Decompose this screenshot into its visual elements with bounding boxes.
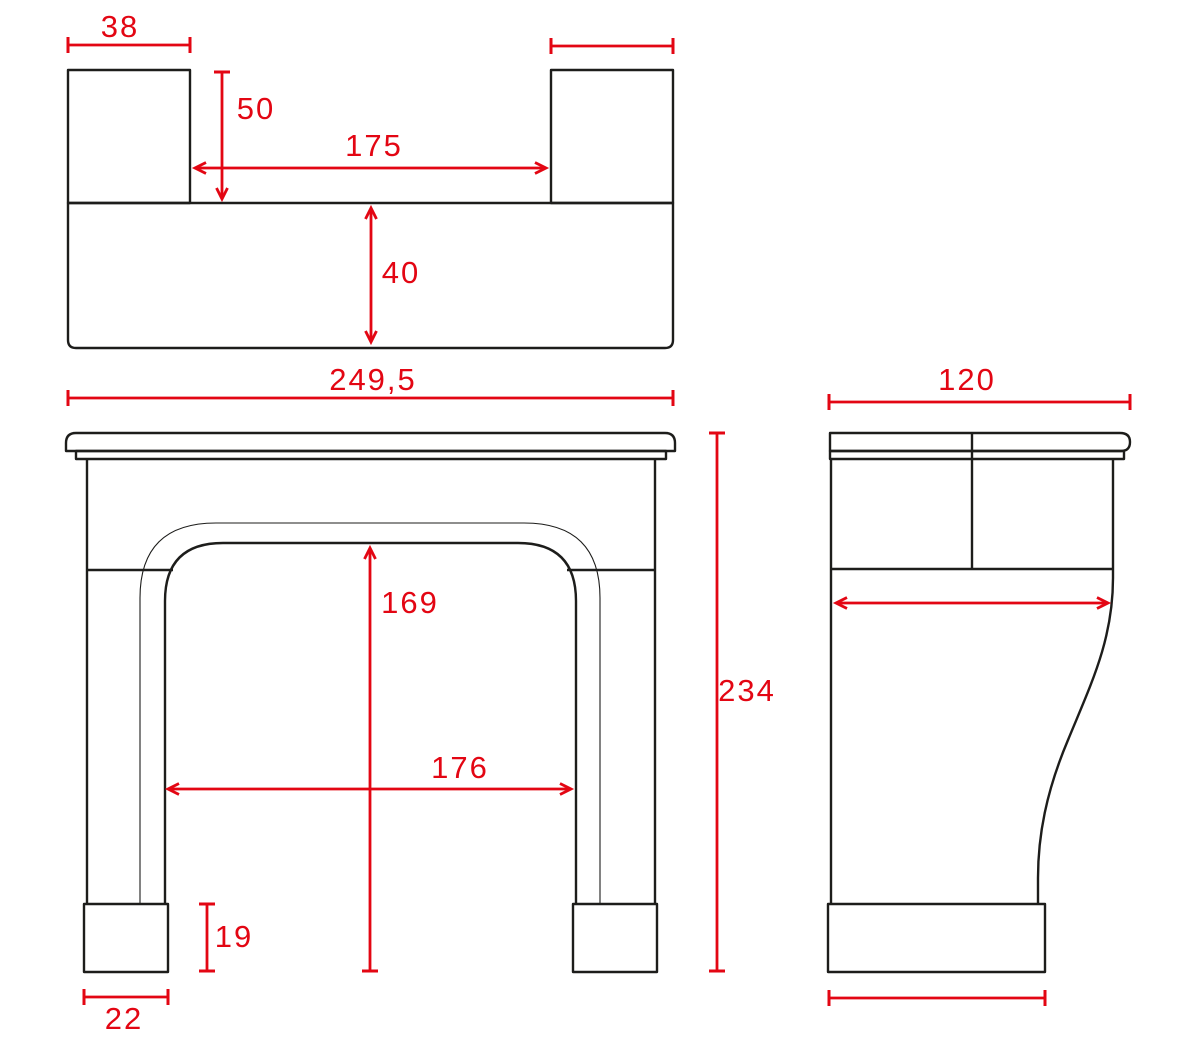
dim-38-label: 38 bbox=[101, 9, 139, 44]
side-plinth bbox=[828, 904, 1045, 972]
dim-120-label: 120 bbox=[938, 362, 996, 397]
top-view-right-block bbox=[551, 70, 673, 203]
front-shelf-step bbox=[76, 451, 666, 459]
dim-249-label: 249,5 bbox=[329, 362, 417, 397]
top-view-dimensions: 38 50 175 40 249,5 bbox=[68, 9, 673, 406]
dim-40-label: 40 bbox=[382, 255, 420, 290]
side-view bbox=[828, 433, 1130, 972]
side-shelf-step bbox=[830, 451, 1124, 459]
dim-50-label: 50 bbox=[237, 91, 275, 126]
front-right-plinth bbox=[573, 904, 657, 972]
dim-19-label: 19 bbox=[215, 919, 253, 954]
dim-234-label: 234 bbox=[718, 673, 776, 708]
dim-22-label: 22 bbox=[105, 1001, 143, 1036]
dim-175-label: 175 bbox=[345, 128, 403, 163]
side-mantel-shelf bbox=[830, 433, 1130, 451]
fireplace-dimension-drawing: 38 50 175 40 249,5 bbox=[0, 0, 1200, 1050]
front-left-plinth bbox=[84, 904, 168, 972]
top-view-left-block bbox=[68, 70, 190, 203]
front-mantel-shelf bbox=[66, 433, 675, 451]
dim-169-label: 169 bbox=[381, 585, 439, 620]
technical-drawing-page: 38 50 175 40 249,5 bbox=[0, 0, 1200, 1050]
dim-176-label: 176 bbox=[431, 750, 489, 785]
side-console-curve bbox=[1038, 459, 1113, 904]
